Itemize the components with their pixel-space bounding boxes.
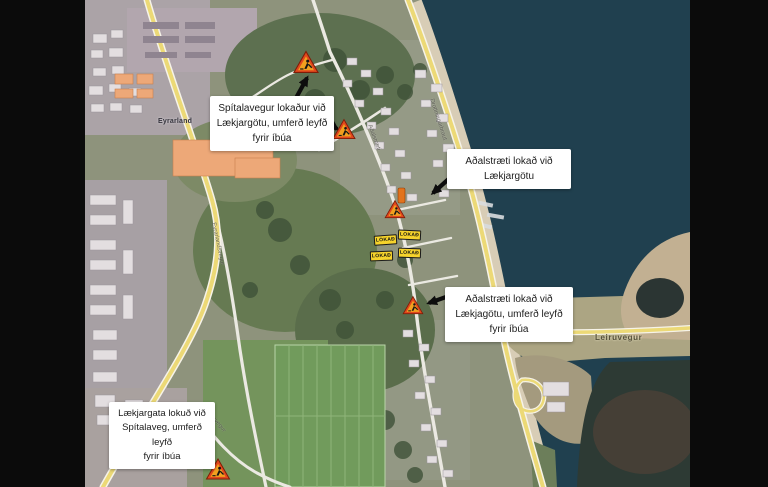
map-label-eyrarland: Eyrarland (158, 118, 192, 125)
street-label-adalstraeti: Aðalstræti (366, 124, 381, 151)
letterbox-left (0, 0, 85, 487)
street-label-eyrarlandsvegur: Eyrarlandsvegur (210, 222, 225, 266)
map-canvas: Eyrarland Leiruvegur Eyrarlandsvegur Spí… (85, 0, 690, 487)
callout-line: fyrir íbúa (451, 322, 567, 337)
label-overlay: Eyrarland Leiruvegur Eyrarlandsvegur Spí… (85, 0, 690, 487)
callout-line: Aðalstræti lokað við (451, 292, 567, 307)
closure-badge: LOKAÐ (398, 248, 421, 259)
map-label-leiruvegur: Leiruvegur (595, 333, 642, 342)
callout-line: Lækjargata lokuð við (115, 407, 209, 421)
letterbox-right (690, 0, 768, 487)
callout-line: Lækjargötu, umferð leyfð (216, 116, 328, 131)
closure-badge: LOKAÐ (370, 251, 393, 262)
callout-line: fyrir íbúa (216, 131, 328, 146)
callout-line: Lækjargötu (453, 169, 565, 184)
callout-adalstraeti-closed-south: Aðalstræti lokað við Lækjagötu, umferð l… (445, 287, 573, 342)
callout-line: Lækjagötu, umferð leyfð (451, 307, 567, 322)
closure-badge: LOKAÐ (374, 234, 398, 246)
callout-laekjargata-closed: Lækjargata lokuð við Spítalaveg, umferð … (109, 402, 215, 469)
callout-adalstraeti-closed-north: Aðalstræti lokað við Lækjargötu (447, 149, 571, 189)
street-label-drottningarbraut: Drottningarbraut (428, 98, 447, 141)
closure-badge: LOKAÐ (398, 229, 421, 240)
callout-line: Aðalstræti lokað við (453, 154, 565, 169)
callout-line: Spítalavegur lokaður við (216, 101, 328, 116)
callout-line: Spítalaveg, umferð leyfð (115, 421, 209, 450)
callout-spitalavegur-closed: Spítalavegur lokaður við Lækjargötu, umf… (210, 96, 334, 151)
callout-line: fyrir íbúa (115, 450, 209, 464)
